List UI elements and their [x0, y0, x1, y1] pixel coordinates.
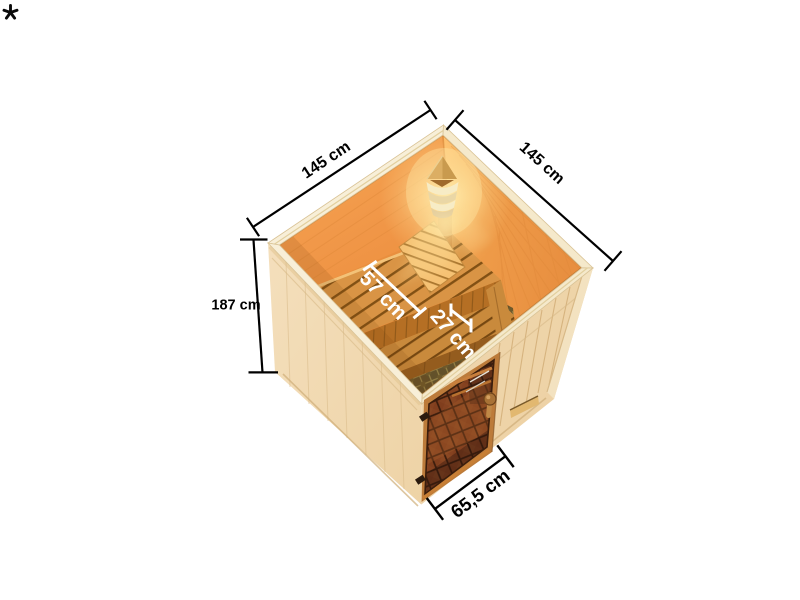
svg-text:187 cm: 187 cm — [211, 297, 260, 313]
